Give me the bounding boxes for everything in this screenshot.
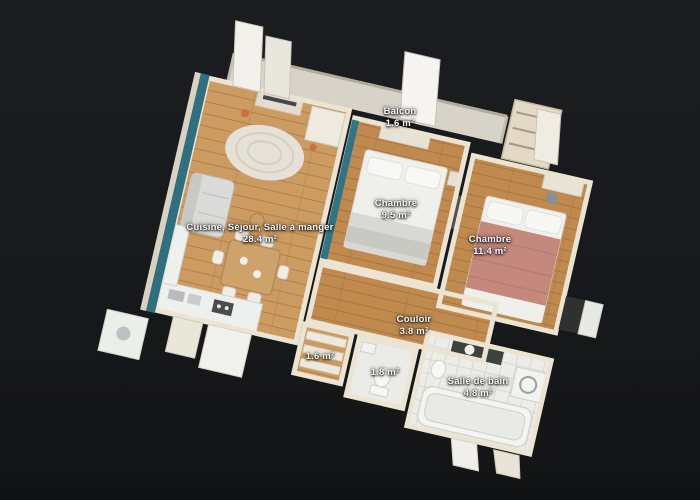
floorplan-3d-render[interactable]: [0, 0, 700, 500]
floorplan-viewport[interactable]: Balcon1.6 m²Chambre9.5 m²Chambre11.4 m²C…: [0, 0, 700, 500]
entry-bench: [558, 296, 603, 338]
cabinet-hutch: [305, 106, 346, 147]
kitchen-sink-jut: [98, 309, 148, 359]
